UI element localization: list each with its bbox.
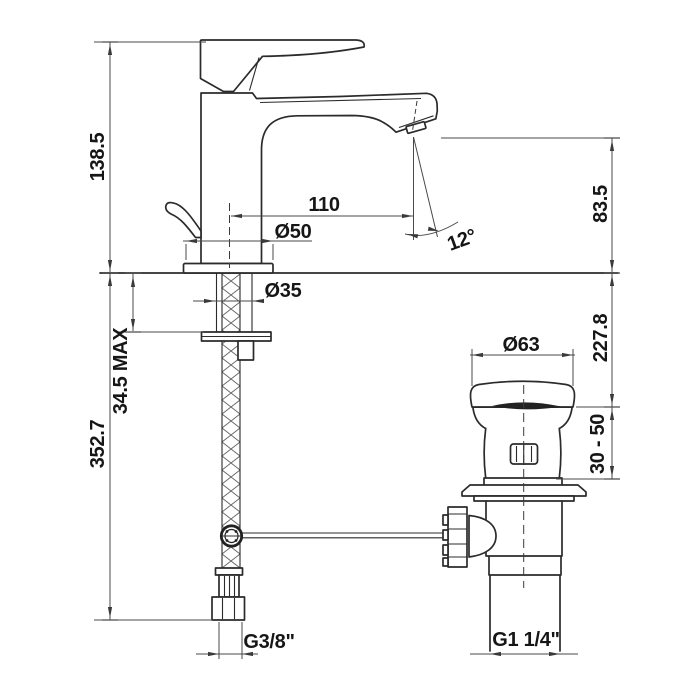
dim-label-supply-thread: G3/8": [243, 631, 294, 653]
dimension-lines: [94, 42, 620, 659]
waste-neck: [473, 408, 572, 429]
base-flange: [184, 264, 274, 274]
dim-label-drain-depth: 227.8: [590, 314, 612, 363]
faucet-lever-handle: [201, 40, 365, 92]
drain-assembly: [443, 381, 586, 651]
dim-label-hose-length: 352.7: [87, 420, 109, 469]
technical-drawing-canvas: 138.5 352.7 34.5 MAX 83.5 227.8 30 - 50 …: [0, 0, 700, 700]
dim-label-deck-max: 34.5 MAX: [110, 327, 132, 414]
rod-retainer-boss: [469, 516, 496, 558]
centerlines: [230, 101, 524, 588]
supply-hose-fitting: [212, 568, 245, 620]
dim-label-spout-reach: 110: [308, 194, 340, 216]
angle-lines: [405, 137, 458, 240]
faucet-spout-body: [201, 93, 437, 264]
dim-label-shank-dia: Ø35: [265, 280, 302, 302]
dim-label-base-dia: Ø50: [275, 221, 312, 243]
dim-label-outlet-height: 83.5: [590, 185, 612, 223]
dim-label-cap-dia: Ø63: [503, 334, 540, 356]
dim-label-total-height: 138.5: [87, 133, 109, 182]
supply-hose-braid: [222, 274, 240, 568]
rod-knurled-nut: [448, 507, 467, 567]
dim-label-drain-range: 30 - 50: [587, 414, 609, 474]
mounting-hardware: [202, 274, 272, 569]
dim-label-waste-thread: G1 1/4": [492, 629, 559, 651]
popup-lift-knob: [166, 203, 201, 238]
mounting-nut: [238, 341, 254, 360]
hose-collar: [216, 568, 243, 575]
hose-hex-nut: [212, 597, 245, 620]
dim-label-spout-angle: 12°: [444, 225, 479, 256]
extension-lines: [94, 42, 619, 659]
horizontal-rod: [242, 533, 445, 538]
popup-rod-linkage: [221, 526, 444, 546]
